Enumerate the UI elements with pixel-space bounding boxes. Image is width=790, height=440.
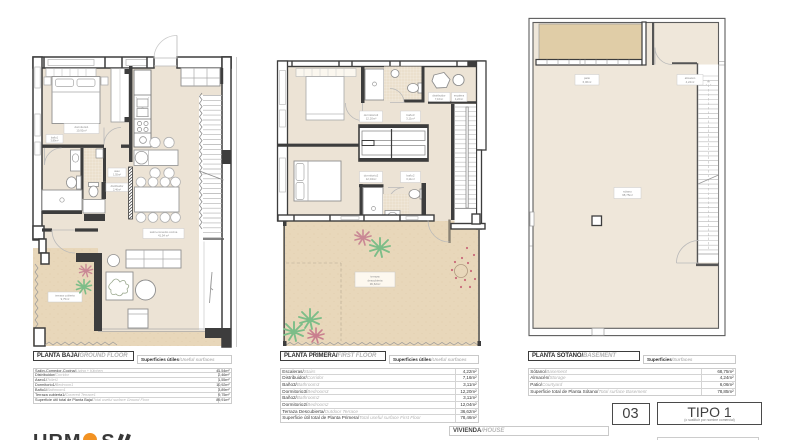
svg-text:4,24m²: 4,24m² (686, 80, 695, 84)
svg-text:distribuidor: distribuidor (111, 184, 124, 188)
svg-text:distribuidor: distribuidor (432, 94, 445, 98)
svg-text:10,92m²: 10,92m² (76, 129, 86, 133)
svg-text:6,06m²: 6,06m² (583, 80, 592, 84)
svg-text:12,04m²: 12,04m² (366, 177, 377, 181)
svg-text:1,55m²: 1,55m² (113, 173, 121, 177)
svg-text:aseo: aseo (114, 170, 120, 173)
svg-text:3,11m²: 3,11m² (406, 117, 415, 121)
svg-text:3,89m²: 3,89m² (50, 139, 58, 143)
svg-text:36,62m²: 36,62m² (370, 282, 381, 286)
svg-text:12,20m²: 12,20m² (366, 117, 377, 121)
svg-text:7,16m²: 7,16m² (435, 97, 443, 101)
svg-text:9,75m²: 9,75m² (61, 297, 70, 301)
svg-text:68,75m²: 68,75m² (622, 193, 633, 197)
svg-text:escalera: escalera (454, 94, 465, 98)
svg-text:3,11m²: 3,11m² (406, 177, 415, 181)
svg-text:baño1: baño1 (51, 135, 59, 139)
svg-text:2,46m²: 2,46m² (113, 187, 121, 191)
svg-text:41,54 m²: 41,54 m² (158, 234, 169, 238)
svg-text:4,22m²: 4,22m² (455, 97, 463, 101)
